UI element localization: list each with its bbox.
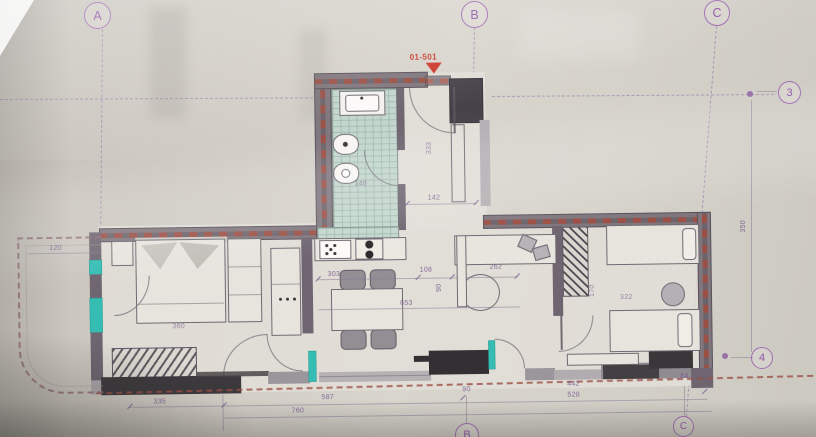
- entry-duct: [451, 124, 466, 202]
- burner-1: [365, 240, 373, 248]
- dim-262: 262: [490, 264, 503, 272]
- single-bed-bottom-pillow: [677, 313, 692, 347]
- bench-shelf: [567, 353, 639, 366]
- oven-knob-2: [286, 298, 289, 301]
- burner-2: [365, 250, 373, 258]
- dim-90-vertical: 90: [436, 283, 444, 292]
- bedroom-wardrobe: [227, 238, 262, 322]
- dim-760: 760: [292, 407, 305, 415]
- dining-chair-3: [340, 330, 366, 350]
- floor-plan-photo: 350 A B C 3 4 B C 148 1: [0, 0, 816, 437]
- sill-2: [525, 368, 555, 380]
- dining-chair-4: [370, 329, 396, 349]
- dim-entry-height: 333: [426, 142, 434, 155]
- bidet-drain: [341, 169, 350, 178]
- dim-90-bottom: 90: [462, 386, 471, 394]
- bathroom-wall-lower: [397, 184, 406, 230]
- sill-1: [268, 371, 310, 384]
- teal-door-1: [309, 351, 316, 381]
- sink-dot-1: [325, 244, 328, 247]
- dim-entry-width: 142: [428, 195, 441, 203]
- exterior-wall-left-upper: [314, 73, 333, 233]
- dim-bed: 360: [172, 323, 185, 331]
- entrance-threshold: [425, 75, 451, 85]
- wardrobe-hatched: [562, 226, 589, 296]
- sink-dot-2: [333, 244, 336, 247]
- single-bed-top-pillow: [682, 228, 696, 260]
- oven-knob-3: [293, 298, 296, 301]
- oven-column: [270, 247, 301, 335]
- dim-bed2-height: 170: [589, 284, 597, 297]
- unit-marker-triangle-icon: [426, 63, 442, 74]
- bathroom-wall-upper: [396, 88, 405, 150]
- dim-587: 587: [321, 394, 334, 402]
- unit-marker-label: 01-501: [410, 53, 437, 62]
- exterior-wall-right: [697, 212, 713, 388]
- dim-335: 335: [153, 398, 166, 406]
- dim-balcony: 120: [49, 245, 62, 253]
- bottom-dim-line-1: [130, 399, 708, 408]
- balcony-door-leaf: [197, 371, 269, 377]
- apartment-plan: 148 142 333 01-501: [0, 0, 816, 437]
- bdim-tick-4: [702, 389, 708, 395]
- kitchen-sink: [319, 240, 351, 259]
- toilet-drain: [343, 142, 348, 147]
- tv-cabinet: [429, 350, 489, 375]
- nightstand: [111, 241, 133, 266]
- entry-pier: [480, 120, 491, 206]
- sill-3: [554, 369, 601, 380]
- balcony-inner-line: [25, 244, 103, 387]
- desk-return: [456, 235, 467, 307]
- tv-cabinet-arm: [414, 356, 431, 362]
- oven-knob-1: [279, 298, 282, 301]
- dim-528: 528: [567, 392, 580, 400]
- bdim-tick-3: [460, 395, 466, 401]
- sink-dot-3: [329, 248, 332, 251]
- dim-108: 108: [420, 267, 433, 275]
- exterior-wall-top-upper: [314, 72, 428, 90]
- dim-653: 653: [400, 300, 413, 308]
- washbasin-tap: [360, 97, 363, 100]
- partition-bedroom-kitchen: [301, 237, 313, 333]
- radiator: [112, 347, 197, 378]
- bottom-dim-stub: [222, 395, 224, 431]
- dim-442: 442: [567, 381, 580, 389]
- sink-dot-5: [333, 252, 336, 255]
- dim-303: 303: [328, 271, 341, 279]
- sink-dot-4: [325, 252, 328, 255]
- dim-bed2-width: 322: [620, 294, 633, 302]
- dim-84: 84: [680, 373, 689, 381]
- dim-bathroom: 148: [354, 181, 367, 189]
